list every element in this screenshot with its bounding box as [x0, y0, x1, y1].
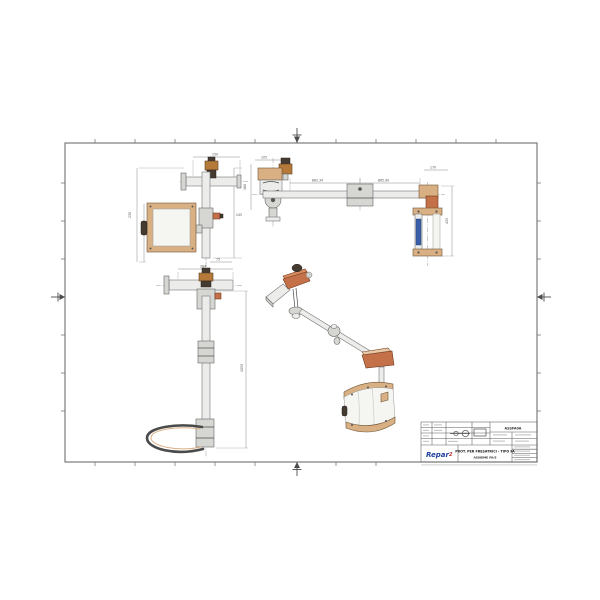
- front-mid-clamp: [198, 341, 214, 363]
- plan-cross-bar: [186, 177, 240, 186]
- iso-shield-handle: [342, 406, 347, 416]
- dim-side-left-w: 105: [261, 156, 267, 160]
- dim-side-left-h: 160: [243, 184, 247, 190]
- dim-plan-bottom: 75: [216, 258, 220, 262]
- drawing-title-line2: ASSIEME FA/S: [473, 456, 496, 460]
- sheet-frame: [51, 128, 551, 476]
- centering-mark-right: [537, 293, 551, 302]
- view-plan: 150 235 245 75: [128, 153, 248, 266]
- centering-mark-left: [51, 293, 65, 302]
- iso-clamp-knob: [292, 264, 302, 272]
- dim-plan-top: 150: [212, 153, 218, 157]
- plan-shield-link: [196, 225, 202, 233]
- front-hook-inner: [151, 428, 201, 449]
- material-box: [474, 429, 486, 436]
- drawing-title-line1: PROT. PER FRESATRICI - TIPO FA: [455, 450, 515, 454]
- drawing-code: ASSFA0A: [505, 427, 522, 431]
- view-side: 105 160 862.34 865.90 170 425: [243, 156, 454, 266]
- dim-side-span-right: 865.90: [378, 179, 389, 183]
- front-bar-flange: [164, 276, 169, 294]
- centering-mark-bottom: [293, 462, 302, 476]
- plan-shield: [141, 203, 196, 252]
- front-clamp-knob: [199, 268, 213, 287]
- drawing-sheet: 150 235 245 75: [0, 0, 600, 600]
- iso-elbow: [362, 348, 394, 368]
- plan-bar-endcap: [237, 175, 241, 188]
- side-wall-clamp: [258, 158, 292, 221]
- title-block: ASSFA0A Repar2 PROT. PER FRESATRICI - TI…: [421, 422, 537, 466]
- drawing-svg: 150 235 245 75: [0, 0, 600, 600]
- centering-mark-top: [293, 128, 302, 143]
- dim-front-height: 1055: [240, 364, 244, 372]
- company-logo: Repar2: [426, 451, 453, 459]
- dim-side-span-left: 862.34: [312, 179, 323, 183]
- front-top-clamp-knob: [215, 293, 221, 299]
- dim-side-right-h: 425: [445, 218, 449, 224]
- plan-mid-clamp-knob: [213, 213, 220, 219]
- plan-shield-handle: [141, 221, 147, 235]
- side-elbow: [419, 185, 438, 210]
- grid-ticks-bottom: [95, 462, 376, 466]
- front-bottom-clamp: [196, 419, 214, 447]
- view-isometric: [266, 264, 395, 432]
- projection-symbol-icon: [450, 430, 470, 436]
- side-center-clamp: [347, 184, 373, 206]
- plan-bar-flange: [181, 173, 186, 190]
- side-shield-blue-label: [416, 219, 421, 245]
- dim-side-right-w: 170: [430, 166, 436, 170]
- view-front: 264 1055: [147, 262, 248, 458]
- iso-shield: [342, 382, 395, 432]
- dim-plan-right: 245: [236, 213, 242, 217]
- dim-plan-left: 235: [128, 212, 132, 218]
